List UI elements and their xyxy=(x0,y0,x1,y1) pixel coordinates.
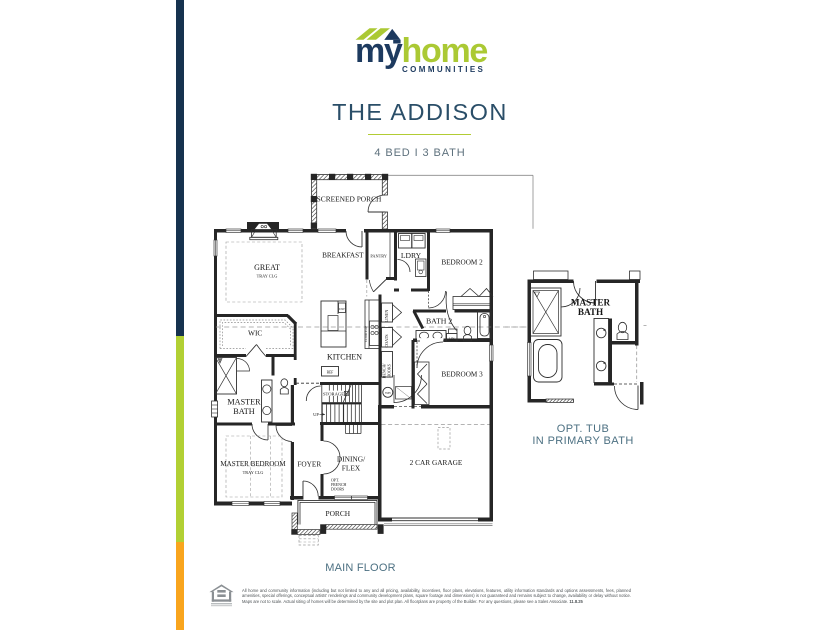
svg-text:2 CAR GARAGE: 2 CAR GARAGE xyxy=(410,458,463,467)
svg-text:LDRY: LDRY xyxy=(401,251,422,260)
svg-text:TRAY CLG: TRAY CLG xyxy=(257,273,278,278)
svg-text:WH: WH xyxy=(385,391,391,395)
svg-text:FOYER: FOYER xyxy=(297,460,321,469)
svg-text:FRENCH: FRENCH xyxy=(331,483,347,487)
svg-text:BEDROOM 3: BEDROOM 3 xyxy=(441,371,483,379)
svg-text:DW: DW xyxy=(339,307,345,311)
svg-text:FLEX: FLEX xyxy=(342,463,361,472)
svg-text:WIC: WIC xyxy=(248,329,262,338)
svg-text:LIN.: LIN. xyxy=(449,337,456,341)
svg-text:PANTRY: PANTRY xyxy=(370,254,387,259)
svg-text:MASTER BEDROOM: MASTER BEDROOM xyxy=(220,460,286,468)
svg-text:MASTER: MASTER xyxy=(571,298,611,308)
svg-text:GREAT: GREAT xyxy=(254,263,280,272)
svg-text:KITCHEN: KITCHEN xyxy=(327,353,362,362)
svg-text:BATH 2: BATH 2 xyxy=(426,316,452,325)
svg-text:HOOKS: HOOKS xyxy=(387,364,392,378)
svg-text:BATH: BATH xyxy=(578,307,603,317)
svg-text:BATH: BATH xyxy=(233,407,254,416)
svg-text:DOORS: DOORS xyxy=(331,487,344,491)
svg-text:OPT.: OPT. xyxy=(331,478,339,482)
svg-text:COATS: COATS xyxy=(384,334,389,348)
svg-text:UP: UP xyxy=(313,412,319,417)
svg-text:STORAGE: STORAGE xyxy=(323,391,344,396)
svg-text:MASTER: MASTER xyxy=(227,398,261,407)
svg-text:SCREENED PORCH: SCREENED PORCH xyxy=(317,194,382,203)
svg-text:BEDROOM 2: BEDROOM 2 xyxy=(441,259,483,267)
svg-text:TRAY CLG: TRAY CLG xyxy=(243,470,264,475)
svg-text:REF: REF xyxy=(327,371,334,375)
svg-text:LINEN: LINEN xyxy=(384,310,389,323)
svg-text:COOKTOP: COOKTOP xyxy=(364,326,368,342)
svg-text:BREAKFAST: BREAKFAST xyxy=(322,251,364,259)
svg-text:PORCH: PORCH xyxy=(325,509,350,518)
